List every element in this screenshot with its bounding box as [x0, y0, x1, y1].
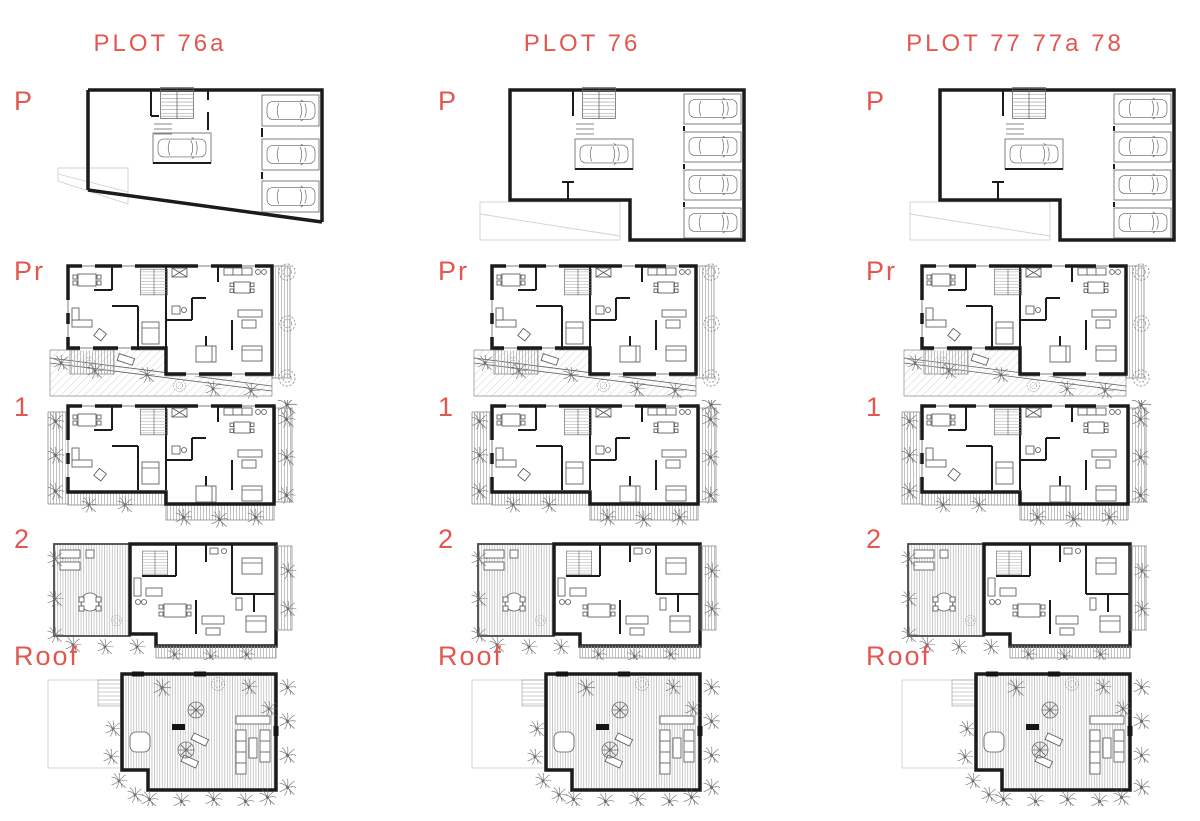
plot-title-76: PLOT 76	[452, 30, 712, 58]
drawing-sheet: PLOT 76a P Pr 1 2 Roof PLOT 76 P Pr 1 2 …	[0, 0, 1200, 821]
floorplan-parking-76a	[26, 84, 298, 236]
floorplan-roof-76	[468, 666, 720, 806]
floor-label-1-76a: 1	[14, 392, 31, 423]
floor-label-pr-77: Pr	[866, 256, 897, 287]
floorplan-roof-77	[898, 666, 1150, 806]
floor-label-1-77: 1	[866, 392, 883, 423]
floorplan-parking-77	[878, 84, 1150, 248]
floorplan-pr-77	[900, 262, 1152, 404]
floorplan-pr-76	[470, 262, 722, 404]
plot-title-76a: PLOT 76a	[30, 30, 290, 58]
floorplan-roof-76a	[44, 666, 296, 806]
floorplan-2-76a	[46, 538, 298, 660]
floor-label-2-77: 2	[866, 524, 883, 555]
floor-label-2-76: 2	[438, 524, 455, 555]
floorplan-2-77	[900, 538, 1152, 660]
floorplan-1-77	[900, 400, 1152, 528]
floor-label-2-76a: 2	[14, 524, 31, 555]
floorplan-2-76	[470, 538, 722, 660]
floor-label-pr-76a: Pr	[14, 256, 45, 287]
floor-label-1-76: 1	[438, 392, 455, 423]
floorplan-1-76a	[46, 400, 298, 528]
floorplan-parking-76	[448, 84, 720, 248]
floorplan-1-76	[470, 400, 722, 528]
floorplan-pr-76a	[46, 262, 298, 404]
floor-label-pr-76: Pr	[438, 256, 469, 287]
plot-title-77-77a-78: PLOT 77 77a 78	[880, 30, 1150, 58]
